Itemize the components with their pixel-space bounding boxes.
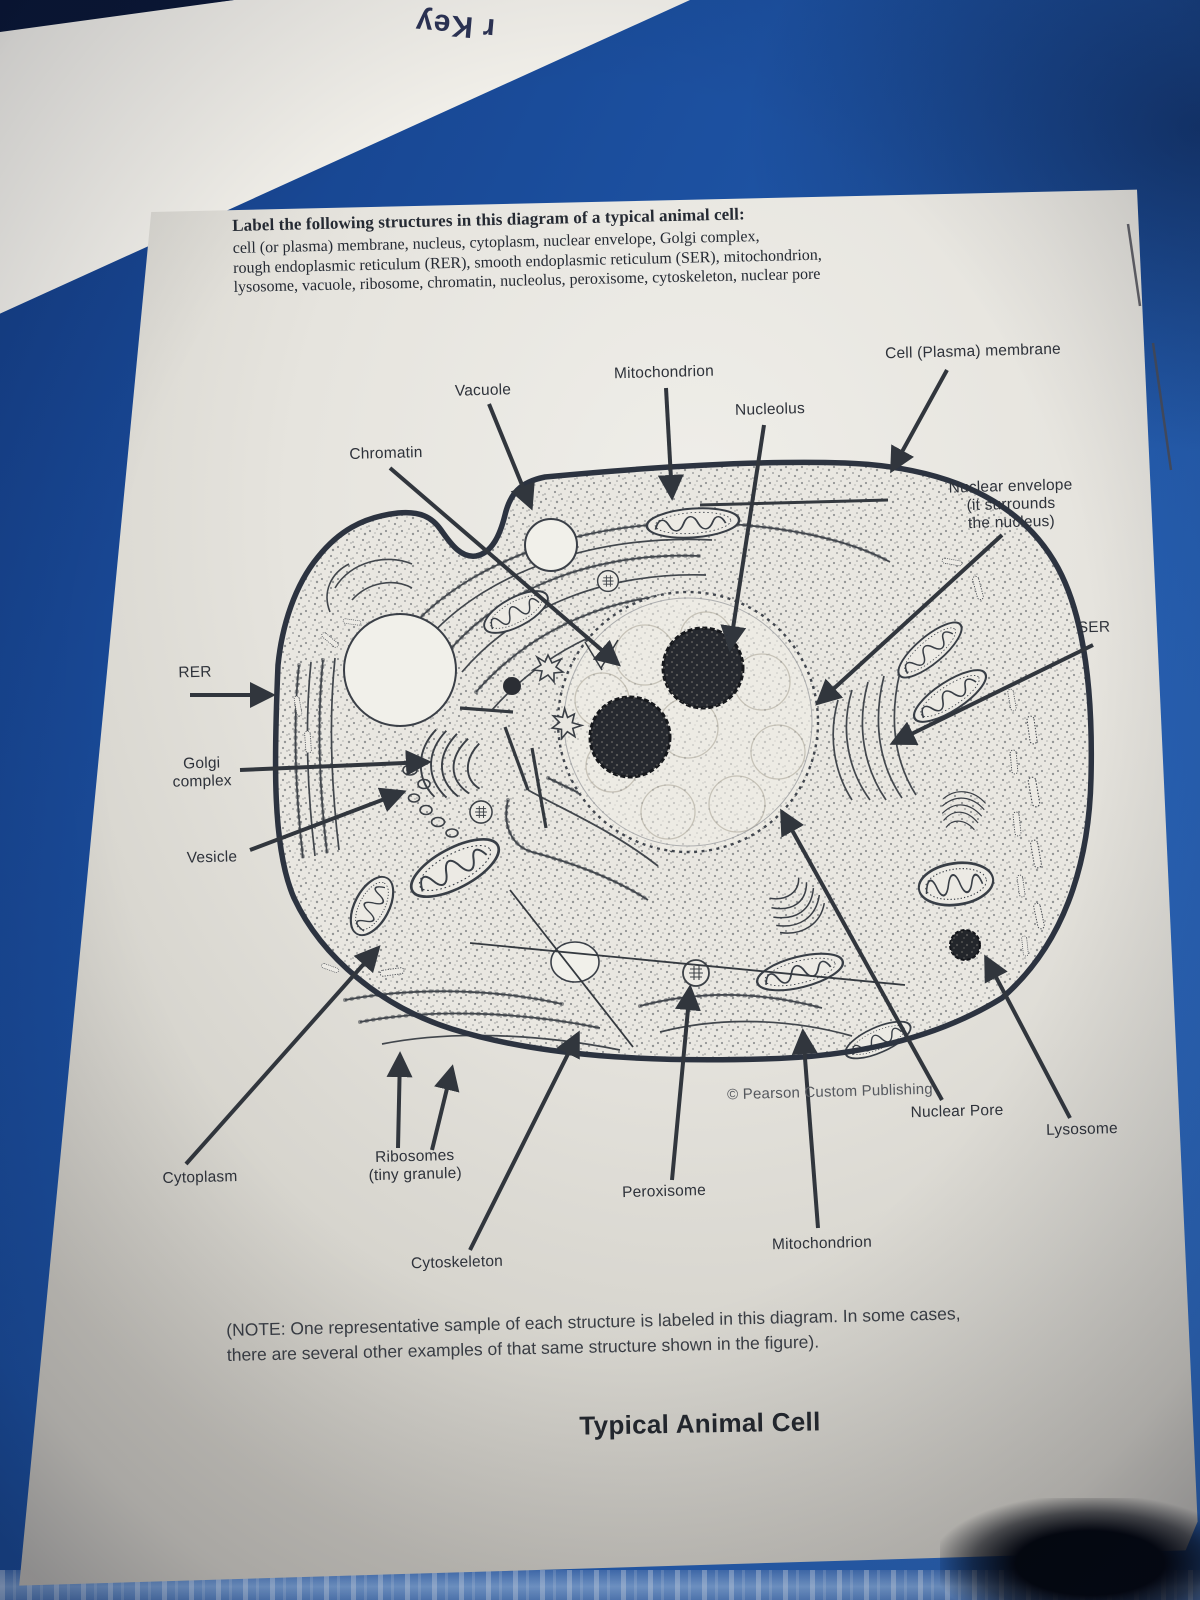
label-mitochondrion-top: Mitochondrion — [614, 363, 714, 384]
label-chromatin: Chromatin — [349, 444, 423, 464]
photo-scene: r Key — [0, 0, 1200, 1600]
vesicle-round — [551, 942, 599, 982]
vacuole-shape — [525, 519, 577, 571]
label-peroxisome: Peroxisome — [622, 1182, 706, 1202]
label-nuclear-pore: Nuclear Pore — [910, 1102, 1003, 1122]
label-ser: SER — [1078, 619, 1111, 638]
arrow-ribosomes-1 — [398, 1055, 400, 1148]
arrow-lysosome — [986, 958, 1070, 1118]
arrow-cytoskeleton — [470, 1034, 578, 1250]
label-vacuole: Vacuole — [455, 381, 512, 400]
label-golgi-complex: Golgi complex — [172, 754, 232, 792]
large-vacuole-shape — [344, 614, 456, 726]
arrow-cell-membrane — [892, 370, 947, 470]
label-rer: RER — [178, 664, 212, 683]
label-ribosomes: Ribosomes (tiny granule) — [368, 1147, 462, 1185]
label-vesicle: Vesicle — [187, 848, 238, 867]
label-mitochondrion-bottom: Mitochondrion — [772, 1234, 872, 1255]
label-cytoplasm: Cytoplasm — [162, 1168, 237, 1188]
arrow-mitochondrion-bottom — [803, 1032, 818, 1228]
label-lysosome: Lysosome — [1046, 1120, 1118, 1140]
arrow-vacuole — [489, 404, 531, 507]
bottom-right-shadow — [940, 1498, 1200, 1600]
label-nuclear-envelope: Nuclear envelope (it surrounds the nucle… — [948, 476, 1073, 533]
arrow-cytoplasm — [186, 948, 378, 1164]
granule — [503, 677, 521, 695]
copy-artifact-marks — [1128, 224, 1171, 470]
label-cytoskeleton: Cytoskeleton — [411, 1253, 503, 1273]
arrow-ribosomes-2 — [432, 1068, 452, 1150]
nucleus — [558, 592, 818, 852]
worksheet-title: Typical Animal Cell — [579, 1406, 821, 1441]
label-nucleolus: Nucleolus — [735, 400, 805, 420]
